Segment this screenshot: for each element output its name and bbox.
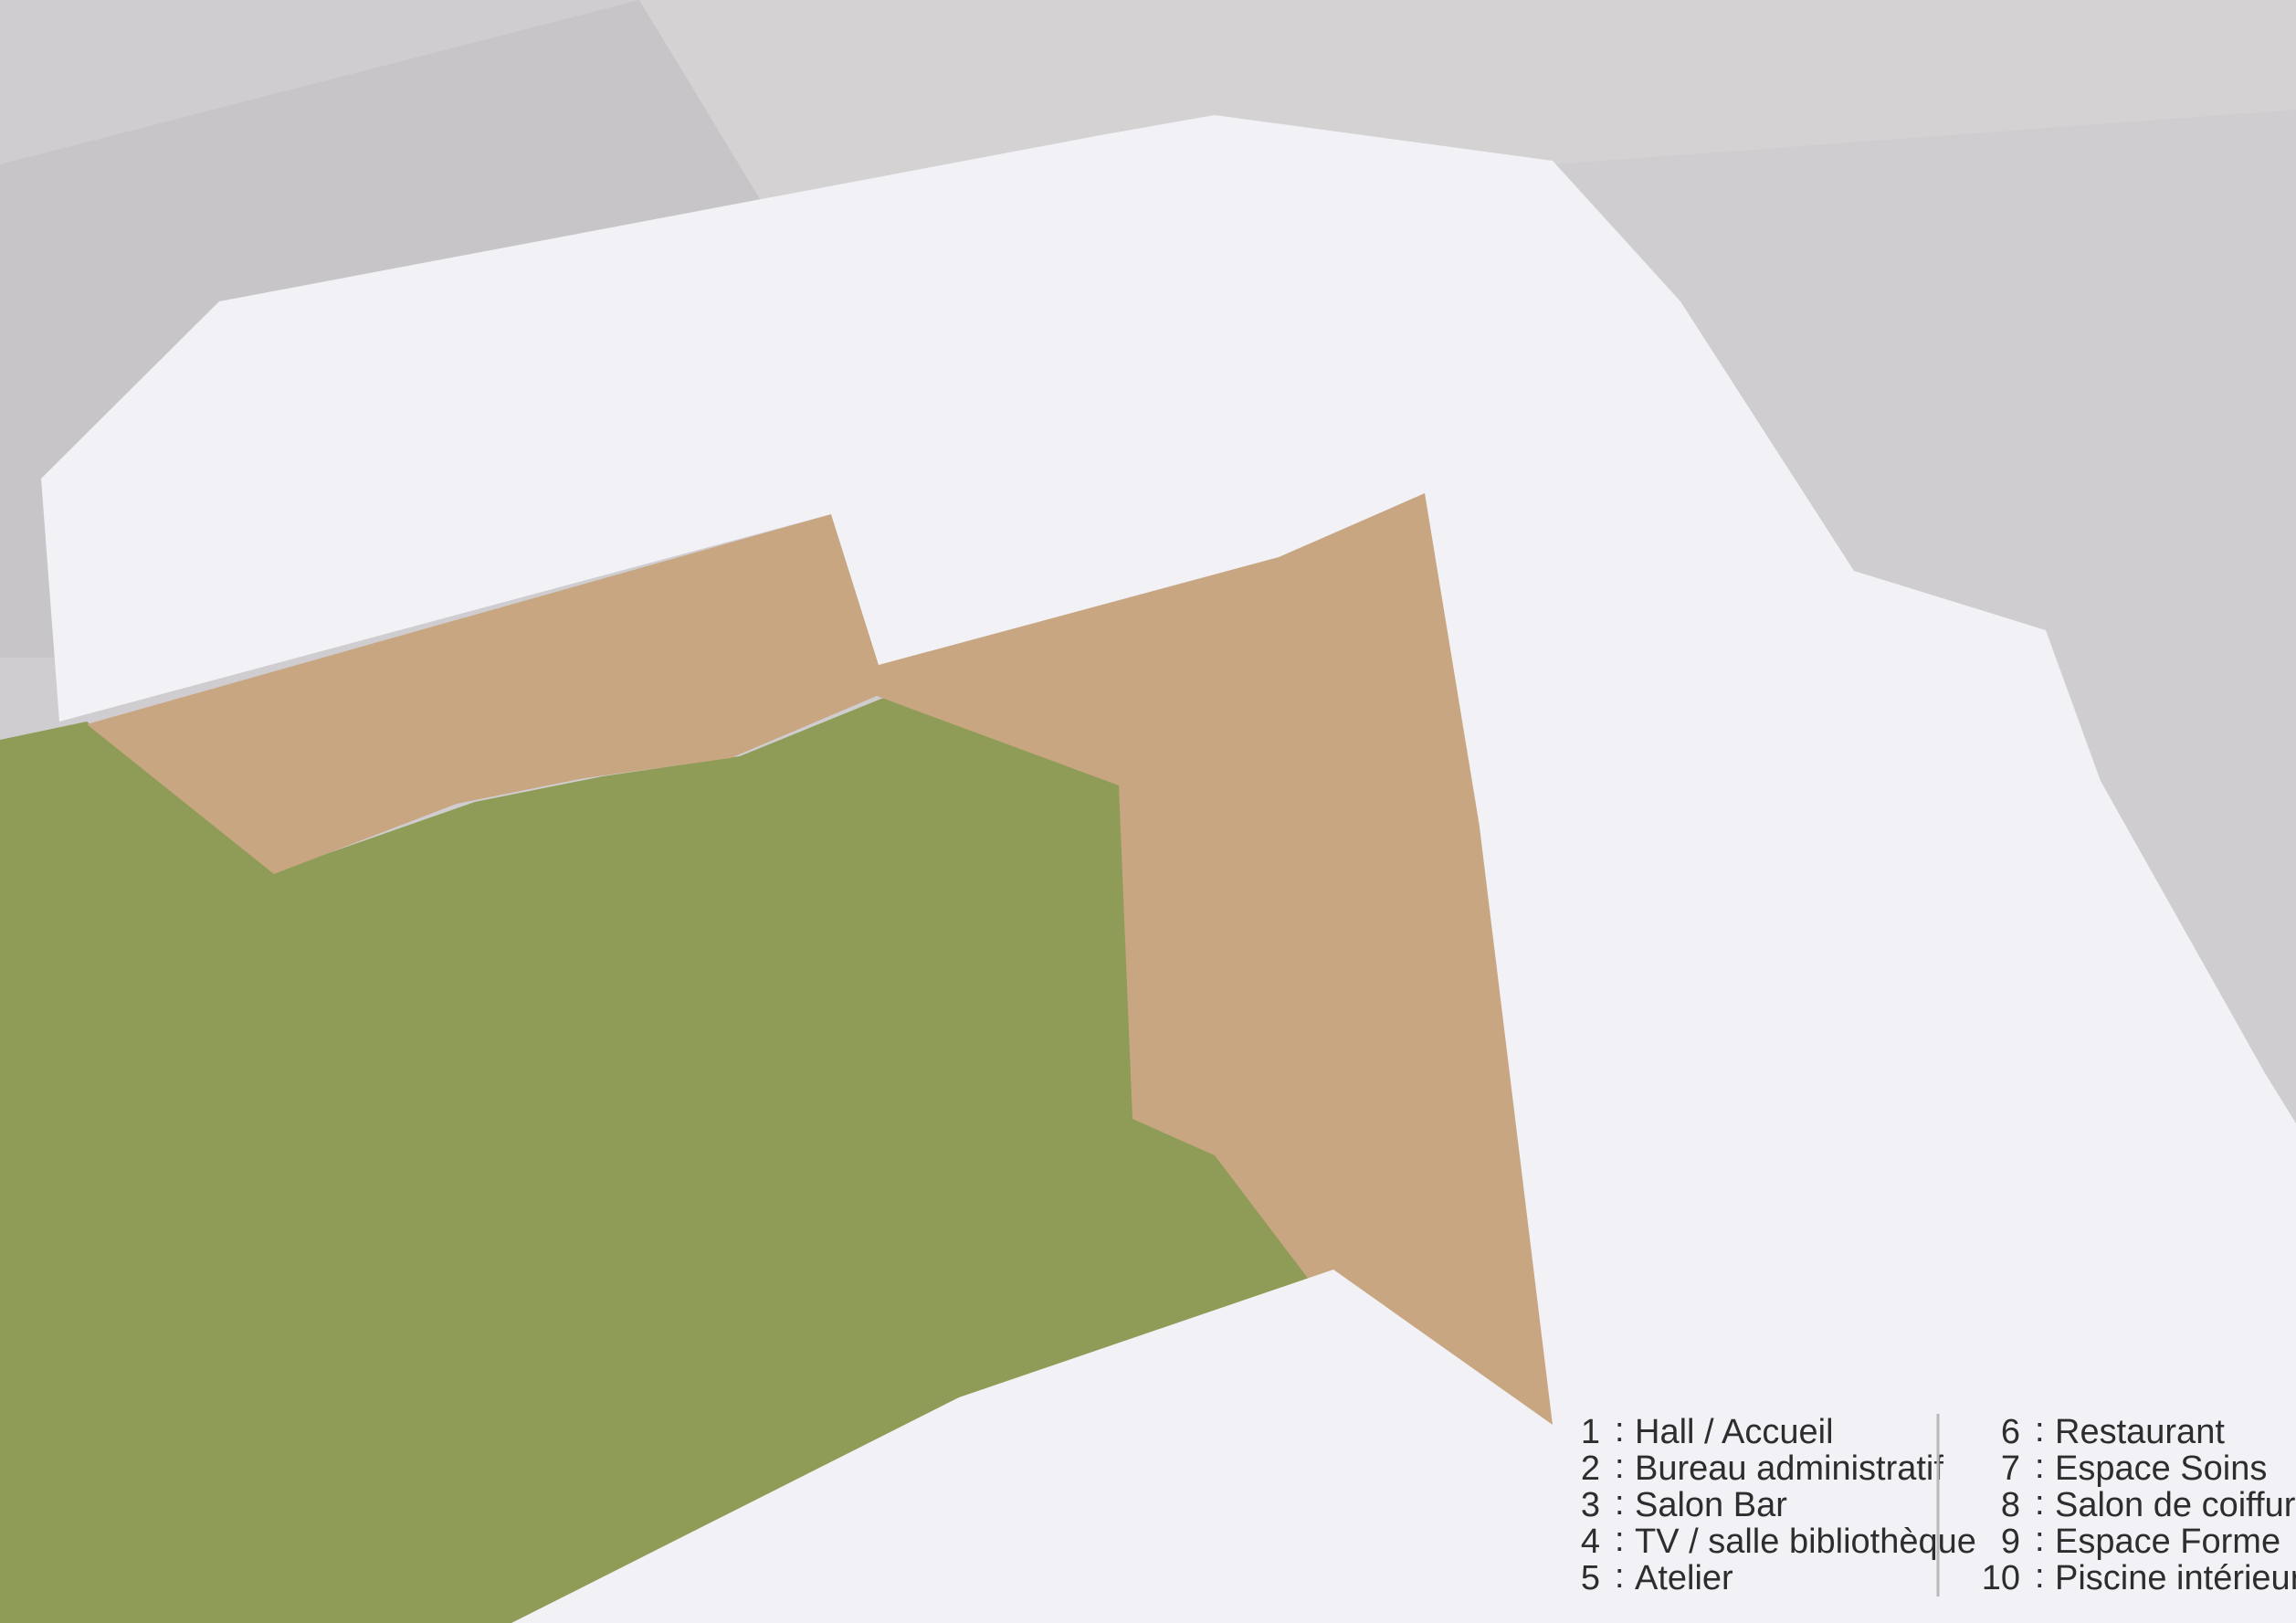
svg-text:5: 5 bbox=[1581, 1559, 1600, 1597]
svg-text:Espace Forme: Espace Forme bbox=[2055, 1523, 2280, 1561]
svg-text:4: 4 bbox=[1581, 1523, 1600, 1561]
svg-text::: : bbox=[1615, 1521, 1625, 1559]
svg-text:Salon de coiffure: Salon de coiffure bbox=[2055, 1486, 2296, 1524]
svg-text:Piscine intérieure: Piscine intérieure bbox=[2055, 1559, 2296, 1597]
svg-text:8: 8 bbox=[2001, 1486, 2020, 1524]
svg-text:Bureau administratif: Bureau administratif bbox=[1635, 1449, 1943, 1488]
svg-text:TV / salle bibliothèque: TV / salle bibliothèque bbox=[1635, 1523, 1976, 1561]
svg-text:3: 3 bbox=[1581, 1486, 1600, 1524]
svg-text::: : bbox=[2035, 1484, 2045, 1523]
svg-text:10: 10 bbox=[1982, 1559, 2020, 1597]
svg-text:Salon Bar: Salon Bar bbox=[1635, 1486, 1787, 1524]
svg-text:Restaurant: Restaurant bbox=[2055, 1413, 2225, 1451]
svg-text:Hall / Accueil: Hall / Accueil bbox=[1635, 1413, 1834, 1451]
svg-text::: : bbox=[1615, 1484, 1625, 1523]
svg-text::: : bbox=[2035, 1521, 2045, 1559]
svg-text:Atelier: Atelier bbox=[1635, 1559, 1733, 1597]
svg-text:Espace Soins: Espace Soins bbox=[2055, 1449, 2267, 1488]
svg-text::: : bbox=[2035, 1557, 2045, 1596]
svg-text:1: 1 bbox=[1581, 1413, 1600, 1451]
svg-text:9: 9 bbox=[2001, 1523, 2020, 1561]
svg-text:6: 6 bbox=[2001, 1413, 2020, 1451]
svg-text:2: 2 bbox=[1581, 1449, 1600, 1488]
svg-text::: : bbox=[1615, 1557, 1625, 1596]
svg-text::: : bbox=[2035, 1411, 2045, 1449]
svg-text::: : bbox=[1615, 1448, 1625, 1486]
svg-text::: : bbox=[1615, 1411, 1625, 1449]
svg-text:7: 7 bbox=[2001, 1449, 2020, 1488]
svg-text::: : bbox=[2035, 1448, 2045, 1486]
